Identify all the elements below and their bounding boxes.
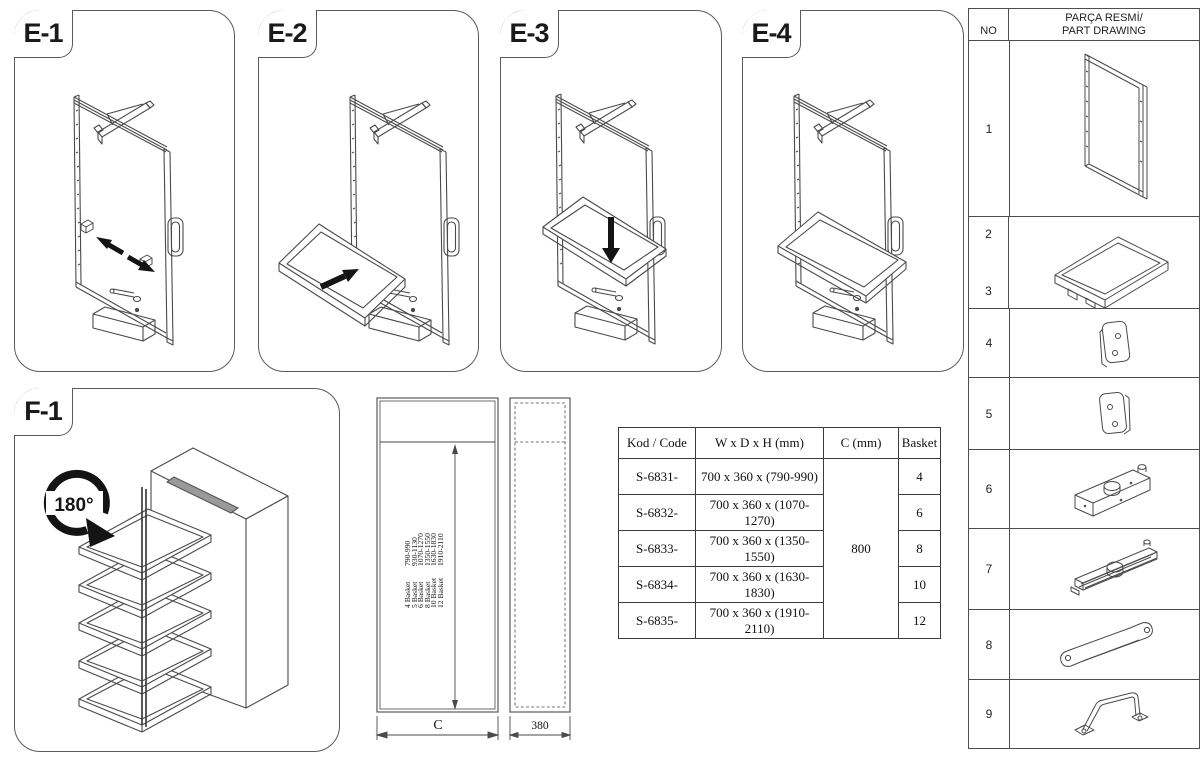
- part-number: 2: [985, 227, 992, 241]
- code-cell: S-6834-: [619, 567, 696, 603]
- no-column-header: NO: [969, 9, 1009, 40]
- basket-cell: 6: [899, 495, 941, 531]
- dims-cell: 700 x 360 x (1350-1550): [696, 531, 824, 567]
- dims-cell: 700 x 360 x (1910-2110): [696, 603, 824, 639]
- spec-table: Kod / Code W x D x H (mm) C (mm) Basket …: [618, 427, 941, 639]
- panel-e3: E-3: [500, 10, 722, 372]
- dims-cell: 700 x 360 x (1070-1270): [696, 495, 824, 531]
- panel-f1-label: F-1: [24, 396, 62, 427]
- part-number: 9: [969, 680, 1010, 748]
- header-dims: W x D x H (mm): [696, 428, 824, 459]
- panel-e3-label-tab: E-3: [500, 10, 559, 58]
- panel-e2-label-tab: E-2: [258, 10, 317, 58]
- header-code: Kod / Code: [619, 428, 696, 459]
- header-basket: Basket: [899, 428, 941, 459]
- part-drawing-column-header: PARÇA RESMİ/ PART DRAWING: [1009, 9, 1199, 40]
- panel-e1: E-1: [14, 10, 235, 372]
- e3-tray-lower-drawing: [501, 11, 721, 371]
- code-cell: S-6832-: [619, 495, 696, 531]
- height-range-label: 1910-2110: [436, 533, 445, 566]
- part-number: 1: [969, 41, 1010, 216]
- part-row-7: 7: [969, 529, 1199, 610]
- f1-rotation-drawing: 180°: [15, 389, 339, 751]
- panel-e4-label-tab: E-4: [742, 10, 801, 58]
- cabinet-dimension-drawing: 4 Basket 5 Basket 6 Basket 8 Basket 10 B…: [360, 390, 590, 750]
- code-cell: S-6833-: [619, 531, 696, 567]
- basket-cell: 12: [899, 603, 941, 639]
- header-line-1: PARÇA RESMİ/: [1065, 12, 1142, 25]
- frame-part-drawing: [1011, 41, 1199, 216]
- mounting-plate-part-drawing: [1011, 378, 1199, 449]
- basket-count-label: 12 Basket: [436, 577, 445, 608]
- connection-strap-part-drawing: [1011, 610, 1199, 679]
- panel-e4: E-4: [742, 10, 964, 372]
- height-options-labels: 4 Basket 5 Basket 6 Basket 8 Basket 10 B…: [403, 533, 445, 608]
- part-number: 8: [969, 610, 1010, 679]
- outward-arrows-icon: [96, 237, 155, 272]
- header-line-2: PART DRAWING: [1062, 25, 1146, 38]
- parts-list-table: NO PARÇA RESMİ/ PART DRAWING 1: [968, 8, 1200, 749]
- part-row-8: 8: [969, 610, 1199, 680]
- part-row-6: 6: [969, 450, 1199, 529]
- part-row-2-3: 2 3: [969, 217, 1199, 309]
- dims-cell: 700 x 360 x (1630-1830): [696, 567, 824, 603]
- pivot-rail-part-drawing: [1011, 529, 1199, 609]
- parts-list-header: NO PARÇA RESMİ/ PART DRAWING: [969, 9, 1199, 41]
- spec-table-header-row: Kod / Code W x D x H (mm) C (mm) Basket: [619, 428, 941, 459]
- basket-tray-part-drawing: [1010, 217, 1198, 308]
- panel-e3-label: E-3: [509, 18, 548, 49]
- panel-e2-label: E-2: [267, 18, 306, 49]
- catalog-page: E-1 E-2: [0, 0, 1200, 760]
- e4-assembled-drawing: [743, 11, 963, 371]
- code-cell: S-6831-: [619, 459, 696, 495]
- side-view: [510, 398, 570, 712]
- panel-f1: F-1: [14, 388, 340, 752]
- panel-e1-label: E-1: [23, 18, 62, 49]
- part-number-group: 2 3: [969, 217, 1009, 308]
- panel-e2: E-2: [258, 10, 479, 372]
- e2-tray-insert-drawing: [259, 11, 478, 371]
- depth-dimension-label: 380: [531, 720, 549, 732]
- basket-cell: 10: [899, 567, 941, 603]
- part-row-9: 9: [969, 680, 1199, 748]
- panel-e4-label: E-4: [751, 18, 790, 49]
- panel-f1-label-tab: F-1: [14, 388, 73, 436]
- c-value-cell: 800: [824, 459, 899, 639]
- part-row-4: 4: [969, 309, 1199, 378]
- part-number: 5: [969, 378, 1010, 449]
- e1-clip-mounting-drawing: [15, 11, 234, 371]
- part-row-1: 1: [969, 41, 1199, 217]
- basket-cell: 8: [899, 531, 941, 567]
- part-number: 6: [969, 450, 1010, 528]
- part-number: 3: [985, 284, 992, 298]
- support-handle-part-drawing: [1011, 680, 1199, 748]
- table-row: S-6831- 700 x 360 x (790-990) 800 4: [619, 459, 941, 495]
- mounting-clips: [81, 220, 152, 268]
- part-number: 7: [969, 529, 1010, 609]
- basket-tray: [778, 212, 906, 303]
- header-c: C (mm): [824, 428, 899, 459]
- basket-cell: 4: [899, 459, 941, 495]
- part-number: 4: [969, 309, 1010, 377]
- panel-e1-label-tab: E-1: [14, 10, 73, 58]
- width-dimension-label: C: [433, 718, 442, 733]
- rotate-180-icon: 180°: [46, 474, 115, 547]
- code-cell: S-6835-: [619, 603, 696, 639]
- pivot-housing-part-drawing: [1011, 450, 1199, 528]
- dims-cell: 700 x 360 x (790-990): [696, 459, 824, 495]
- rotation-angle-label: 180°: [54, 495, 93, 516]
- mounting-plate-part-drawing: [1011, 309, 1199, 377]
- part-row-5: 5: [969, 378, 1199, 450]
